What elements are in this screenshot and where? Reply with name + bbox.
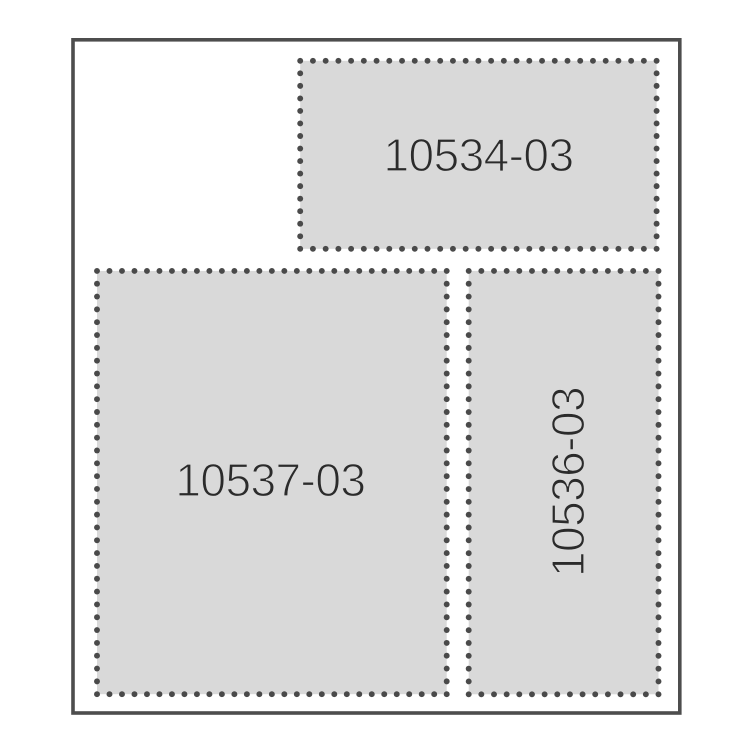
svg-text:10534-03: 10534-03: [384, 129, 574, 181]
svg-text:10536-03: 10536-03: [542, 387, 594, 577]
svg-text:10537-03: 10537-03: [175, 454, 365, 506]
